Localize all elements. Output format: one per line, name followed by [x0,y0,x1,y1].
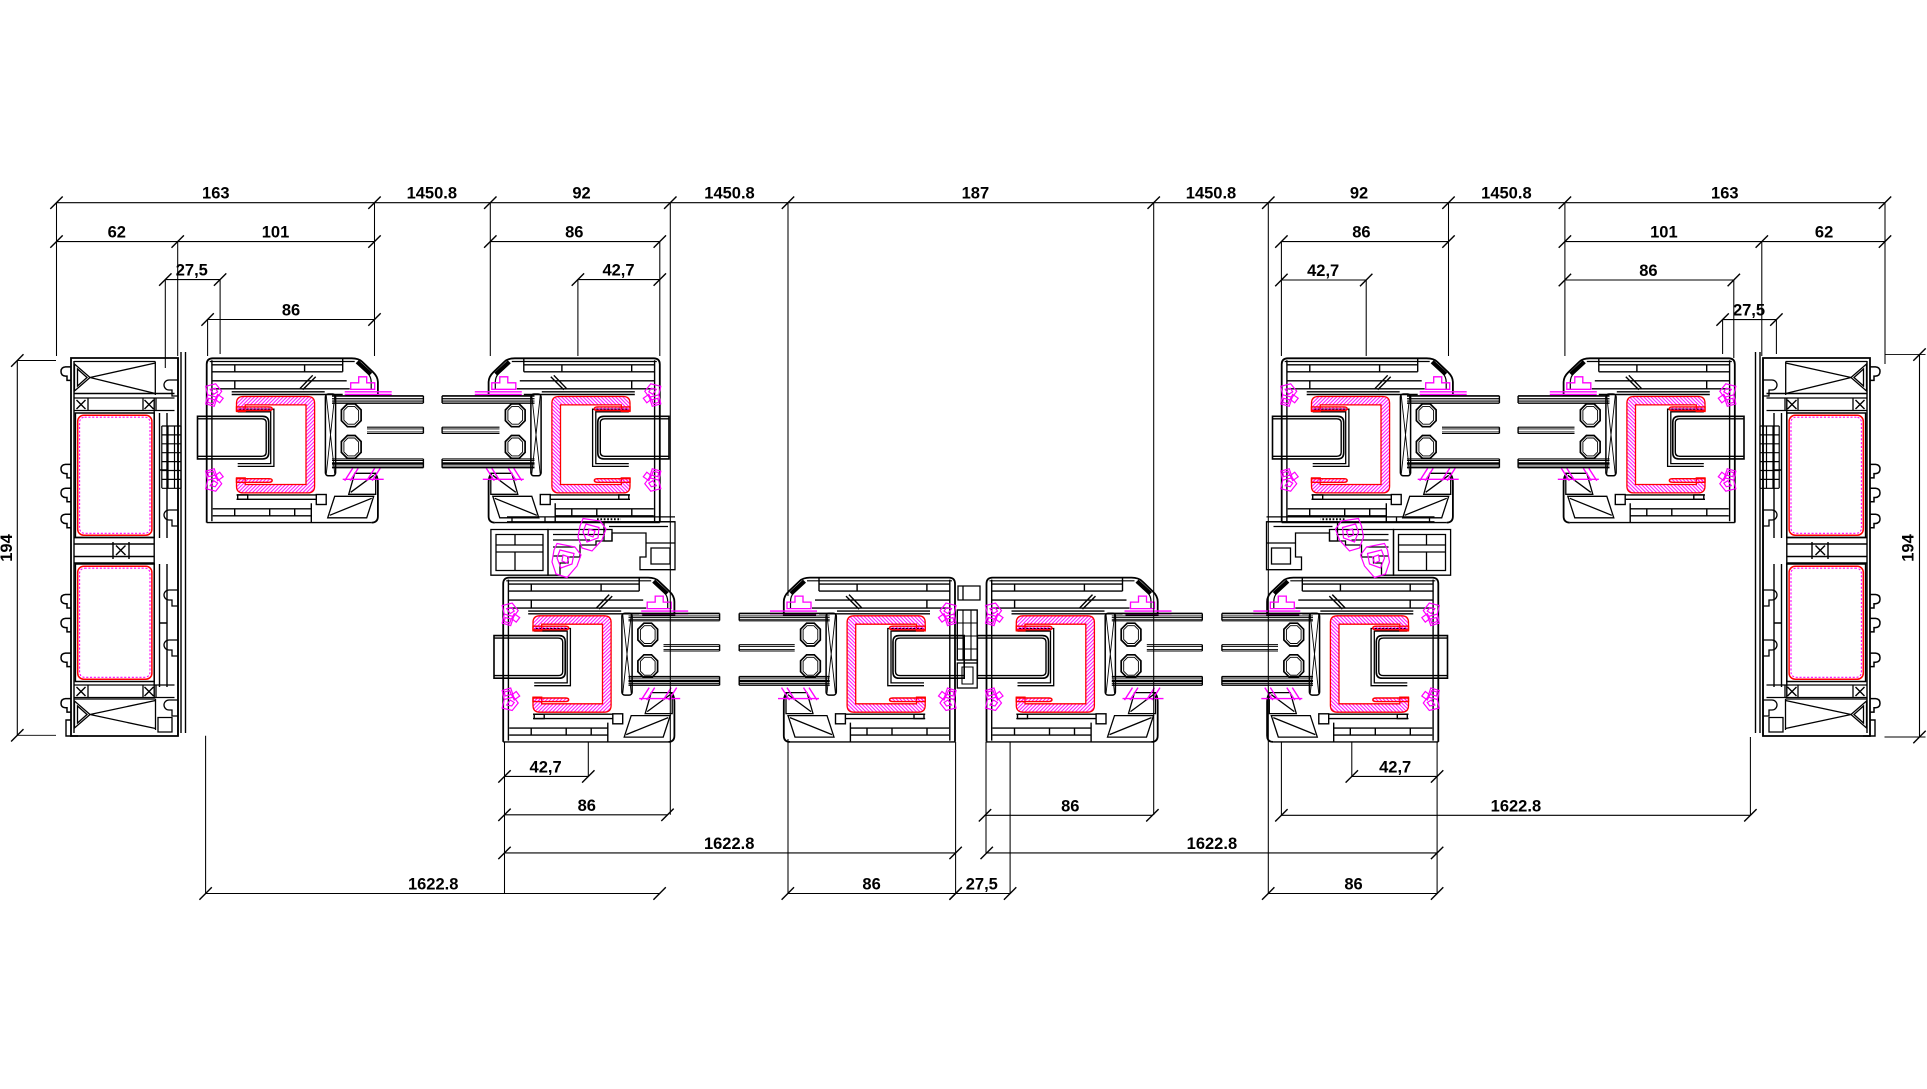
svg-text:27,5: 27,5 [176,262,208,280]
svg-text:86: 86 [1352,224,1370,242]
svg-text:92: 92 [1350,185,1368,203]
svg-text:101: 101 [1650,224,1678,242]
svg-text:27,5: 27,5 [966,876,998,894]
svg-text:86: 86 [282,302,300,320]
svg-text:86: 86 [1344,876,1362,894]
svg-text:1622.8: 1622.8 [1491,797,1541,815]
svg-text:42,7: 42,7 [1379,758,1411,776]
svg-text:163: 163 [1711,185,1739,203]
svg-text:1622.8: 1622.8 [1187,835,1237,853]
svg-text:86: 86 [565,224,583,242]
svg-text:163: 163 [202,185,230,203]
svg-text:86: 86 [578,797,596,815]
svg-text:86: 86 [1061,797,1079,815]
svg-text:194: 194 [1900,533,1918,561]
svg-text:42,7: 42,7 [530,758,562,776]
svg-text:194: 194 [0,533,16,561]
svg-text:62: 62 [108,224,126,242]
svg-text:101: 101 [262,224,290,242]
svg-text:1450.8: 1450.8 [704,185,754,203]
svg-text:1450.8: 1450.8 [407,185,457,203]
svg-text:92: 92 [572,185,590,203]
svg-text:86: 86 [862,876,880,894]
svg-text:62: 62 [1815,224,1833,242]
svg-text:1622.8: 1622.8 [704,835,754,853]
svg-text:27,5: 27,5 [1733,302,1765,320]
svg-text:187: 187 [962,185,990,203]
svg-text:1450.8: 1450.8 [1186,185,1236,203]
svg-text:1450.8: 1450.8 [1481,185,1531,203]
svg-text:42,7: 42,7 [602,262,634,280]
svg-text:86: 86 [1639,262,1657,280]
svg-text:1622.8: 1622.8 [408,876,458,894]
svg-text:42,7: 42,7 [1307,262,1339,280]
